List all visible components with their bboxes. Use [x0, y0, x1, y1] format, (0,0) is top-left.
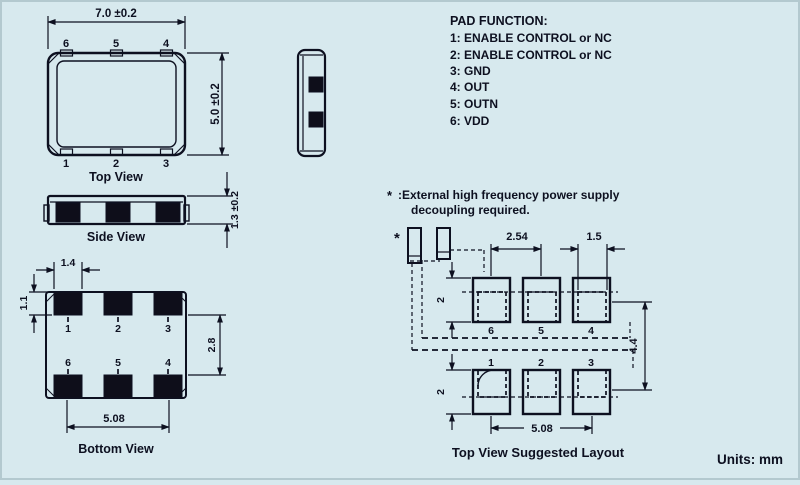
solder-pad: [309, 77, 323, 92]
castellation-marks: [61, 50, 173, 155]
pad-function-item: 2: ENABLE CONTROL or NC: [450, 48, 612, 62]
pin-number: 2: [115, 323, 121, 335]
decoupling-note: * :External high frequency power supply …: [387, 188, 620, 217]
land-pads: [473, 278, 610, 414]
dim-pad-height-top: 2: [435, 262, 471, 338]
pin-number: 6: [65, 357, 71, 369]
dashed-routing: [410, 250, 633, 397]
pin1-indicator-arc: [478, 370, 494, 386]
dim-label: 5.08: [531, 423, 552, 435]
pad-function-item: 4: OUT: [450, 80, 490, 94]
solder-pad: [309, 112, 323, 127]
dim-label: 7.0 ±0.2: [95, 8, 136, 20]
top-view: 6 5 4 1 2 3 7.0 ±0.2 5.0 ±0.2 Top View: [48, 8, 229, 184]
pad-5: [104, 375, 132, 398]
note-line: decoupling required.: [411, 203, 530, 217]
pin-number: 6: [63, 38, 69, 50]
pad-function-list: PAD FUNCTION: 1: ENABLE CONTROL or NC 2:…: [450, 14, 612, 128]
package-lid: [57, 61, 176, 147]
dim-pad-width: 1.5: [560, 231, 625, 290]
dim-label: 5.08: [103, 413, 124, 425]
pin-number: 2: [538, 357, 544, 369]
units-label: Units: mm: [717, 452, 783, 467]
pin-number: 1: [488, 357, 494, 369]
package-drawing: 6 5 4 1 2 3 7.0 ±0.2 5.0 ±0.2 Top View: [0, 0, 800, 480]
decoupling-cap: [437, 228, 450, 259]
note-line: :External high frequency power supply: [398, 188, 620, 202]
pad-4: [154, 375, 182, 398]
dim-label: 5.0 ±0.2: [210, 83, 222, 124]
solder-pad: [156, 203, 180, 222]
pin-number: 5: [538, 325, 544, 337]
view-label: Top View: [89, 170, 143, 184]
dim-thickness: 1.3 ±0.2: [187, 172, 241, 248]
pad-1: [54, 292, 82, 315]
dim-span: 5.08: [67, 400, 169, 433]
dim-label: 1.4: [61, 257, 76, 269]
pad-function-title: PAD FUNCTION:: [450, 14, 548, 28]
dim-row-gap: 2.8: [188, 315, 226, 375]
dim-label: 2.54: [506, 231, 528, 243]
pad-function-item: 5: OUTN: [450, 97, 498, 111]
asterisk-marker: *: [387, 188, 393, 203]
dim-label: 1.5: [586, 231, 601, 243]
view-label: Bottom View: [78, 442, 154, 456]
pad-3: [154, 292, 182, 315]
asterisk-marker: *: [394, 230, 400, 247]
dim-label: 1.3 ±0.2: [229, 191, 241, 229]
decoupling-cap: [408, 228, 421, 263]
pad-function-item: 3: GND: [450, 64, 491, 78]
corner-cuts: [48, 53, 185, 155]
package-outline: [48, 53, 185, 155]
view-label: Side View: [87, 230, 145, 244]
dim-pitch: 2.54: [491, 231, 541, 276]
pin-number: 1: [63, 158, 69, 170]
pin-number: 5: [113, 38, 119, 50]
dim-pad-width: 1.4: [36, 257, 100, 289]
suggested-layout: *: [394, 228, 652, 460]
pin-number: 6: [488, 325, 494, 337]
pin-number: 4: [588, 325, 594, 337]
dim-label: 4.4: [628, 337, 640, 353]
solder-pad: [56, 203, 80, 222]
end-view: [298, 50, 325, 156]
pin-number: 3: [165, 323, 171, 335]
pin-number: 2: [113, 158, 119, 170]
view-label: Top View Suggested Layout: [452, 445, 625, 460]
pin-number: 3: [588, 357, 594, 369]
dim-horizontal-span: 5.08: [491, 416, 592, 435]
dim-pad-height-bottom: 2: [435, 354, 471, 430]
pad-2: [104, 292, 132, 315]
dim-package-height: 5.0 ±0.2: [187, 53, 229, 155]
bottom-view: 1 2 3 6 5 4 1.4 1.1 2.8: [18, 257, 226, 456]
pin-number: 4: [163, 38, 170, 50]
dim-label: 1.1: [18, 296, 30, 311]
pad-function-item: 6: VDD: [450, 114, 490, 128]
pin-number: 4: [165, 357, 171, 369]
pad-6: [54, 375, 82, 398]
dim-label: 2: [435, 297, 447, 303]
dim-label: 2: [435, 389, 447, 395]
package-pad-overlays: [478, 292, 606, 397]
pin-number: 1: [65, 323, 71, 335]
pin-number: 3: [163, 158, 169, 170]
dim-label: 2.8: [206, 338, 218, 353]
package-outline: [298, 50, 325, 156]
pin-number: 5: [115, 357, 121, 369]
pad-function-item: 1: ENABLE CONTROL or NC: [450, 31, 612, 45]
dim-vertical-span: 4.4: [612, 302, 652, 390]
solder-pad: [106, 203, 130, 222]
